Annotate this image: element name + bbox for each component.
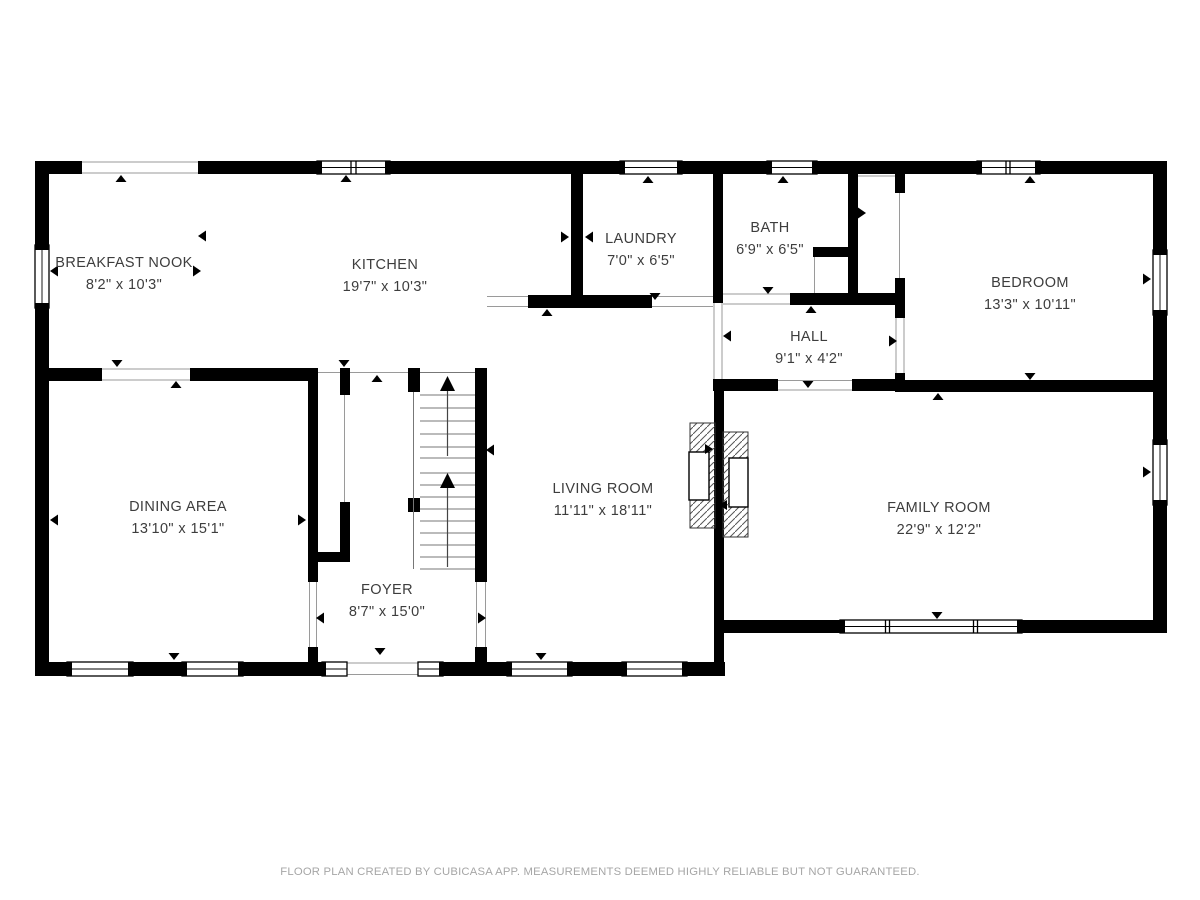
window-dining-bottom-2 (182, 662, 243, 676)
room-label-living-room: LIVING ROOM (552, 481, 653, 497)
opening-arrow-left (486, 445, 494, 456)
room-dims-kitchen: 19'7" x 10'3" (343, 279, 428, 295)
opening-arrow-up (116, 175, 127, 182)
window-living-bottom-1 (507, 662, 572, 676)
door-arrow-up (933, 393, 944, 400)
window-living-bottom-2 (622, 662, 687, 676)
window-foyer-sidelight-left (322, 662, 347, 676)
room-dims-hall: 9'1" x 4'2" (775, 351, 843, 367)
opening-arrow-up (372, 375, 383, 382)
door-arrows (50, 175, 1151, 660)
opening-arrow-down (932, 612, 943, 619)
room-dims-family-room: 22'9" x 12'2" (897, 522, 982, 538)
door-arrow-left (723, 331, 731, 342)
window-family-right (1153, 440, 1167, 505)
window-dining-bottom-1 (67, 662, 133, 676)
window-laundry-top (620, 161, 682, 174)
opening-arrow-down (169, 653, 180, 660)
firebox-family (729, 458, 748, 507)
room-label-laundry: LAUNDRY (605, 231, 677, 247)
floor-plan-canvas: BREAKFAST NOOK 8'2" x 10'3" KITCHEN 19'7… (0, 0, 1200, 900)
opening-arrow-up (643, 176, 654, 183)
footer-disclaimer: FLOOR PLAN CREATED BY CUBICASA APP. MEAS… (280, 866, 919, 878)
front-door-arrow-down (375, 648, 386, 655)
opening-arrow-right (298, 515, 306, 526)
door-arrow-down (339, 360, 350, 367)
opening-arrow-right (193, 266, 201, 277)
door-arrow-left (316, 613, 324, 624)
room-label-kitchen: KITCHEN (352, 257, 418, 273)
room-label-breakfast-nook: BREAKFAST NOOK (55, 255, 192, 271)
firebox-living (689, 452, 709, 500)
floor-plan-page: BREAKFAST NOOK 8'2" x 10'3" KITCHEN 19'7… (0, 0, 1200, 900)
opening-arrow-right (1143, 274, 1151, 285)
room-label-foyer: FOYER (361, 582, 413, 598)
door-arrow-down (763, 287, 774, 294)
window-breakfast-left (35, 245, 49, 308)
room-dims-foyer: 8'7" x 15'0" (349, 604, 425, 620)
door-arrow-up (171, 381, 182, 388)
opening-arrow-left (50, 515, 58, 526)
room-label-bedroom: BEDROOM (991, 275, 1069, 291)
door-arrow-up (806, 306, 817, 313)
door-arrow-down (1025, 373, 1036, 380)
stairs-up-arrow (440, 473, 455, 488)
door-arrow-right (478, 613, 486, 624)
window-family-bottom (840, 620, 1022, 633)
stairs (414, 373, 476, 570)
room-dims-living-room: 11'11" x 18'11" (554, 503, 652, 519)
room-dims-bath: 6'9" x 6'5" (736, 242, 804, 258)
room-label-dining-area: DINING AREA (129, 499, 227, 515)
opening-arrow-right (1143, 467, 1151, 478)
opening-arrow-down (536, 653, 547, 660)
room-dims-dining-area: 13'10" x 15'1" (131, 521, 224, 537)
window-bedroom-right (1153, 250, 1167, 315)
window-breakfast-top (82, 161, 198, 174)
door-arrow-left (585, 232, 593, 243)
window-foyer-sidelight-right (418, 662, 443, 676)
door-arrow-right (561, 232, 569, 243)
stairs-up-arrow (440, 376, 455, 391)
room-dims-breakfast-nook: 8'2" x 10'3" (86, 277, 162, 293)
room-label-family-room: FAMILY ROOM (887, 500, 991, 516)
room-label-hall: HALL (790, 329, 828, 345)
window-bath-top (767, 161, 817, 174)
room-label-bath: BATH (750, 220, 789, 236)
room-dims-bedroom: 13'3" x 10'11" (984, 297, 1076, 313)
opening-arrow-up (341, 175, 352, 182)
opening-arrow-left (198, 231, 206, 242)
room-dims-laundry: 7'0" x 6'5" (607, 253, 675, 269)
door-arrow-down (112, 360, 123, 367)
door-arrow-up (542, 309, 553, 316)
door-arrow-down (803, 381, 814, 388)
opening-arrow-up (778, 176, 789, 183)
room-labels: BREAKFAST NOOK 8'2" x 10'3" KITCHEN 19'7… (55, 220, 1076, 620)
opening-arrow-up (1025, 176, 1036, 183)
window-bedroom-top (977, 161, 1040, 174)
window-kitchen-top (317, 161, 390, 174)
door-arrow-right (858, 208, 866, 219)
